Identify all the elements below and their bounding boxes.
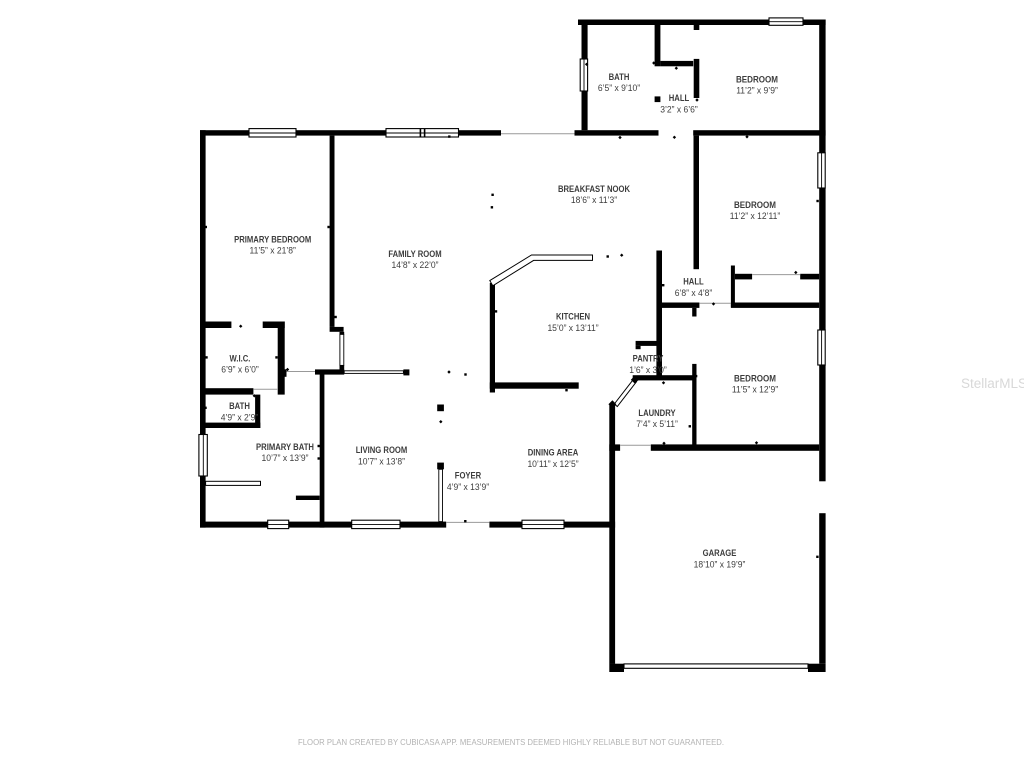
svg-text:3’2” x 6’6”: 3’2” x 6’6” [660,103,698,114]
svg-text:6’5” x 9’10”: 6’5” x 9’10” [598,82,640,93]
svg-text:18’10” x 19’9”: 18’10” x 19’9” [694,558,746,569]
svg-text:4’9” x 13’9”: 4’9” x 13’9” [447,481,489,492]
svg-text:FLOOR PLAN CREATED BY CUBICASA: FLOOR PLAN CREATED BY CUBICASA APP. MEAS… [298,737,724,747]
svg-text:11’5” x 21’8”: 11’5” x 21’8” [250,245,296,256]
svg-text:StellarMLS: StellarMLS [961,376,1024,391]
svg-text:6’8” x 4’8”: 6’8” x 4’8” [675,287,713,298]
svg-text:10’7” x 13’8”: 10’7” x 13’8” [358,455,405,466]
svg-text:15’0” x 13’11”: 15’0” x 13’11” [547,322,598,333]
svg-text:10’11” x 12’5”: 10’11” x 12’5” [527,458,578,469]
svg-text:4’9” x 2’9”: 4’9” x 2’9” [221,411,259,422]
svg-text:18’6” x 11’3”: 18’6” x 11’3” [571,194,617,205]
svg-text:11’2” x 12’11”: 11’2” x 12’11” [730,210,780,221]
svg-text:10’7” x 13’9”: 10’7” x 13’9” [262,452,309,463]
svg-text:6’9” x 6’0”: 6’9” x 6’0” [221,364,259,375]
svg-text:11’2” x 9’9”: 11’2” x 9’9” [736,85,778,96]
svg-text:1’6” x 3’0”: 1’6” x 3’0” [629,364,667,375]
svg-text:7’4” x 5’11”: 7’4” x 5’11” [636,418,678,429]
svg-text:14’8” x 22’0”: 14’8” x 22’0” [392,259,439,270]
svg-text:11’5” x 12’9”: 11’5” x 12’9” [732,384,778,395]
